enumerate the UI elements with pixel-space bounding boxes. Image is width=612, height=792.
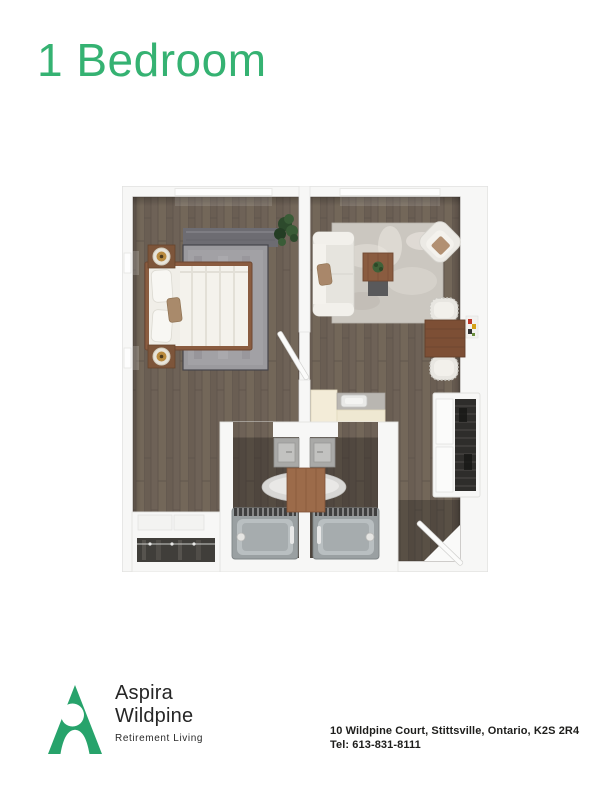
hanger <box>148 542 151 545</box>
dresser-bench <box>183 228 278 247</box>
brochure-page: 1 Bedroom <box>0 0 612 792</box>
tub-fixture <box>366 533 374 541</box>
bathtub-left <box>232 508 298 559</box>
sofa-pillow <box>317 263 333 286</box>
floor-plan-image <box>122 186 488 572</box>
dining-chair-top <box>430 298 458 322</box>
bathtub-right <box>313 508 379 559</box>
closet-counter <box>138 515 172 530</box>
closet-right <box>433 393 480 497</box>
hanger <box>170 542 173 545</box>
contact-block: 10 Wildpine Court, Stittsville, Ontario,… <box>330 724 579 752</box>
shower-left <box>274 438 299 467</box>
brand-name-line1: Aspira <box>115 682 203 705</box>
living-room-window <box>340 189 440 207</box>
dining-table <box>425 320 465 357</box>
grab-bar <box>290 526 294 544</box>
entry-area <box>398 500 464 566</box>
grab-bar <box>317 526 321 544</box>
brand-text: Aspira Wildpine Retirement Living <box>115 682 203 744</box>
bathroom-right-doorway <box>338 422 378 438</box>
shower-right <box>310 438 335 467</box>
phone-line: Tel: 613-831-8111 <box>330 738 579 752</box>
brand-tagline: Retirement Living <box>115 733 203 744</box>
bedroom-window <box>175 189 272 207</box>
footer: Aspira Wildpine Retirement Living 10 Wil… <box>0 668 612 792</box>
bed <box>145 262 252 350</box>
floor-plan <box>122 186 488 572</box>
pillow <box>151 269 173 302</box>
page-title: 1 Bedroom <box>37 33 267 87</box>
bathroom-block <box>220 422 398 572</box>
accent-pillow <box>167 297 183 322</box>
kitchenette <box>311 390 385 425</box>
hanger <box>192 542 195 545</box>
dining-chair-bottom <box>430 356 458 380</box>
aspira-logo-icon <box>45 684 105 756</box>
address-line: 10 Wildpine Court, Stittsville, Ontario,… <box>330 724 579 738</box>
bathroom-left-doorway <box>233 422 273 438</box>
wall-art <box>466 316 478 338</box>
nightstand-bottom <box>148 345 175 368</box>
nightstand-top <box>148 245 175 268</box>
brand-name-line2: Wildpine <box>115 705 203 728</box>
closet-left <box>132 512 220 572</box>
closet-left-interior <box>137 538 215 562</box>
table-plant <box>373 262 384 273</box>
sofa <box>313 232 354 316</box>
tub-fixture <box>237 533 245 541</box>
